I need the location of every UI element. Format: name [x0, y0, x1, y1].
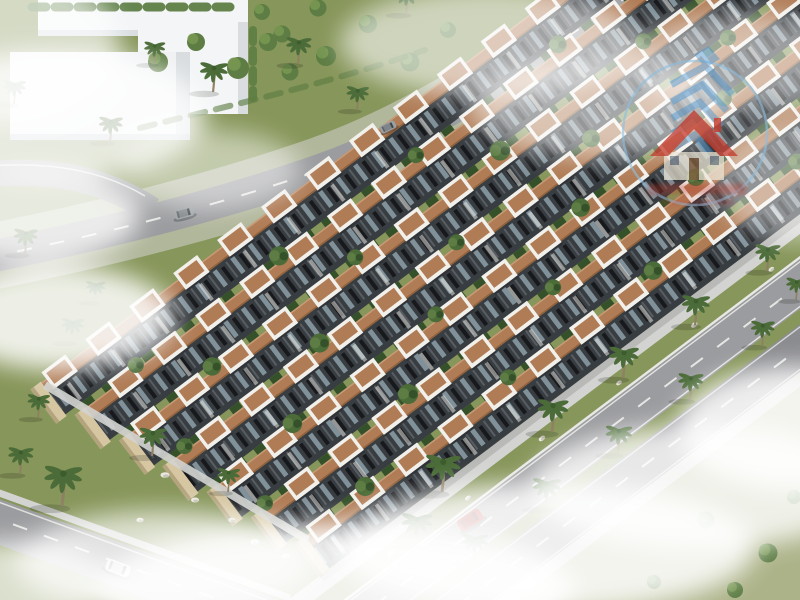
- scene: [0, 0, 800, 600]
- aerial-development-render: [0, 0, 800, 600]
- logo-wordmark: [648, 184, 746, 205]
